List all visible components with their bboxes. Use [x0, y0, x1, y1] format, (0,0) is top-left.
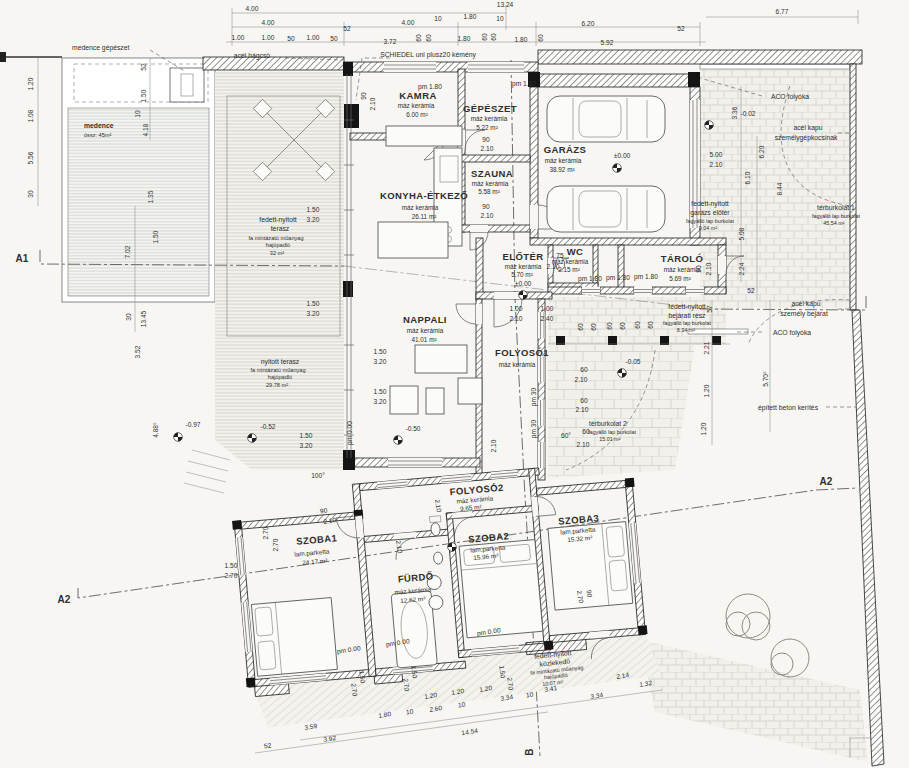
dim: 1.00 [232, 34, 245, 41]
dim: 3.72 [384, 38, 397, 45]
dim: 60 [606, 322, 613, 330]
dim: 2.10 [481, 145, 494, 152]
garage-forecourt-area: 9.04 m² [699, 225, 717, 231]
dim: 30 [27, 190, 34, 198]
dim: 2.24 [738, 262, 745, 275]
dim: 3.36 [731, 106, 738, 119]
garage-forecourt-label: fedett-nyitott [691, 200, 729, 208]
annotation: épített beton kerítés [758, 404, 819, 412]
dim: 60 [590, 323, 597, 331]
floor-plan-page: KAMRA máz kerámia 6.00 m² GÉPÉSZET máz k… [0, 0, 909, 768]
dim: 2.10 [369, 97, 376, 110]
dim: pm 1.80 [578, 275, 602, 283]
dim: 1.20 [700, 422, 707, 435]
dim: 10 [134, 110, 141, 118]
dim: 1.50 [307, 206, 320, 213]
dim: 60 [577, 323, 584, 331]
dim: 1.00 [541, 305, 554, 312]
room-area: 26.11 m² [412, 213, 437, 220]
dim: 4.88⁵ [152, 422, 159, 438]
dim: 3.20 [374, 358, 387, 365]
dim: 1.50 [374, 348, 387, 355]
terrace2-finish: fa mintázatú műanyag [250, 367, 305, 373]
room-finish: máz kerámia [499, 361, 536, 368]
dim: 52 [343, 25, 351, 32]
dim: 2.10 [575, 376, 588, 383]
fence-top-right [538, 50, 862, 64]
dim: 10 [406, 708, 415, 716]
room-area: 5.58 m² [478, 188, 500, 195]
level: ±0.00 [614, 152, 631, 159]
dining-table [378, 222, 448, 258]
terburkolat1-area: 45.54 m² [823, 220, 844, 226]
dim: pm 1.80 [418, 83, 442, 91]
level: -0.05 [625, 358, 640, 365]
dim: 3.20 [307, 310, 320, 317]
dim: pm 30 [530, 420, 538, 439]
dim: 1.35 [147, 190, 154, 203]
room-name: ELŐTÉR [503, 251, 544, 262]
dim: 3.20 [374, 398, 387, 405]
dim: pm 1.80 [634, 273, 658, 281]
dim: 10 [496, 15, 504, 22]
dim: 2.70 [225, 572, 238, 579]
terrace1-finish: hajópadló [266, 242, 290, 248]
dim: 60 [425, 34, 432, 42]
dim: pm 30 [530, 388, 538, 407]
dim: 8.44 [776, 182, 783, 195]
dim: 1.20 [703, 384, 710, 397]
chimney [344, 104, 359, 128]
room-name: WC [567, 246, 584, 257]
terrace2-area: 29.78 m² [266, 382, 288, 388]
section-marker-a1: A1 [16, 253, 29, 264]
entry-porch-area: 8.34 m² [677, 327, 695, 333]
dim: 60 [634, 321, 641, 329]
dim: 3.20 [307, 216, 320, 223]
dim: 2.70 [272, 538, 279, 551]
fence-right [850, 64, 856, 310]
dim: 2.10 [576, 406, 589, 413]
dim: 90 [695, 265, 702, 273]
terrace-deck [215, 72, 344, 470]
dim: 90 [585, 590, 593, 599]
pool-equipment-box [170, 68, 204, 102]
level: -0.50 [405, 425, 420, 432]
annotation: medence gépészet [72, 44, 130, 52]
dim: 57 [706, 305, 713, 313]
pool-label: medence [84, 122, 114, 129]
dim: 60 [481, 33, 488, 41]
dim: 2.10 [547, 263, 560, 270]
room-name: NAPPALI [403, 314, 447, 325]
dim: 5.08 [738, 227, 745, 240]
room-area: 6.00 m² [406, 111, 428, 118]
entry-porch-label: bejárati rész [668, 312, 706, 320]
dim: 1.00 [262, 34, 275, 41]
dim: 13.45 [140, 310, 147, 327]
terburkolat1-label: térburkolat 1 [817, 204, 855, 211]
terrace1-label: terasz [271, 225, 290, 232]
room-finish: máz kerámia [472, 180, 509, 187]
dim: 50 [330, 35, 338, 42]
room-area: 5.70 m² [511, 271, 533, 278]
dim: 90 [360, 92, 367, 100]
dim: 7.02 [124, 245, 131, 258]
dim: 10 [434, 15, 442, 22]
dim: 1.00 [307, 34, 320, 41]
annotation: acél kapu [791, 300, 820, 308]
dim: 1.50 [225, 562, 238, 569]
dim: 60 [582, 428, 590, 435]
dim: 4.18 [142, 123, 149, 136]
dim: 1.80 [515, 36, 528, 43]
floor-plan-drawing: KAMRA máz kerámia 6.00 m² GÉPÉSZET máz k… [0, 0, 909, 768]
room-name: KAMRA [399, 90, 436, 101]
level: -0.02 [740, 110, 755, 117]
dim: 100° [311, 472, 325, 479]
room-finish: máz kerámia [545, 157, 582, 164]
dim: 60 [647, 321, 654, 329]
room-area: 5.69 m² [669, 275, 691, 282]
dim: 60° [561, 432, 571, 439]
entry-porch-finish: fagyálló lap burkolat [663, 320, 711, 326]
room-name: SZAUNA [471, 168, 513, 179]
dim: pm 1.80 [512, 80, 536, 88]
car [547, 186, 665, 232]
terrace2-finish: hajópadló [268, 374, 292, 380]
dim: 2.10 [481, 212, 494, 219]
room-name: GARÁZS [544, 144, 587, 155]
dim: 52 [677, 25, 685, 32]
dim: 5.70⁵ [762, 371, 769, 387]
room-finish: máz kerámia [402, 204, 439, 211]
section-marker-a2: A2 [58, 594, 71, 605]
dim: 6.10 [744, 171, 751, 184]
annotation: személygépkocsinak [775, 134, 838, 142]
room-name: TÁROLÓ [661, 253, 704, 264]
terrace1-label: fedett-nyitott [259, 216, 297, 224]
entry-porch-label: fedett-nyitott [668, 303, 706, 311]
terburkolat2-finish: fagyálló lap burkolat [588, 429, 636, 435]
room-name: KONYHA-ÉTKEZŐ [380, 190, 468, 201]
dim: 5.00 [710, 151, 723, 158]
room-finish: máz kerámia [505, 263, 542, 270]
room-name: GÉPÉSZET [463, 103, 517, 114]
dim: 52 [747, 287, 755, 294]
annotation: ACO folyóka [771, 93, 809, 101]
dim: 90 [320, 507, 329, 515]
dim: 6.20 [582, 20, 595, 27]
dim: 1.50 [152, 230, 159, 243]
dim: 2.10 [577, 441, 590, 448]
dim: 60 [415, 34, 422, 42]
dim: 1.00 [510, 305, 523, 312]
pool-area: össz: 45m² [84, 132, 111, 138]
dim: 5.92 [601, 39, 614, 46]
dim: 2.40 [541, 315, 554, 322]
level: -0.52 [260, 423, 275, 430]
dim: 4.00 [246, 5, 259, 12]
room-area: 38.92 m² [549, 166, 574, 173]
dim: 1.50 [300, 432, 313, 439]
dim: 1.80 [458, 35, 471, 42]
dim: pm 1.80 [606, 274, 630, 282]
fence-top-left [203, 57, 344, 70]
garage-forecourt-label: garázs előtér [690, 209, 730, 217]
terrace1-area: 32 m² [270, 250, 284, 256]
section-marker-b: B [524, 748, 535, 755]
annotation: személy bejárat [780, 310, 828, 318]
annotation: ACO folyóka [773, 329, 811, 337]
dim: 10 [458, 701, 467, 709]
room-area: 41.01 m² [411, 336, 436, 343]
annotation: SCHIEDEL uni plusz20 kémény [380, 51, 476, 59]
room-area: 2.15 m² [558, 266, 580, 273]
dim: 2.10 [490, 439, 497, 452]
room-finish: máz kerámia [471, 115, 508, 122]
dim: 50 [287, 35, 295, 42]
dim: 2.10 [510, 315, 523, 322]
dim: 10 [526, 691, 535, 699]
terrace1-finish: fa mintázatú műanyag [248, 235, 303, 241]
level: ±0.00 [515, 280, 532, 287]
garage-forecourt-finish: fagyálló lap burkolat [686, 218, 734, 224]
dim: 52 [264, 742, 273, 750]
level: -0.97 [185, 421, 200, 428]
dim: 1.80 [464, 13, 477, 20]
dim: 60 [619, 322, 626, 330]
dim: 90 [482, 136, 490, 143]
dim: 4.00 [402, 19, 415, 26]
room-name: FOLYOSÓ1 [495, 347, 549, 358]
terrace2-label: nyitott terasz [261, 358, 300, 366]
dim: 60 [537, 34, 544, 42]
dim: 4.00 [262, 19, 275, 26]
dim: pm 0.00 [346, 421, 354, 445]
dim: 6.77 [776, 8, 789, 15]
dim: 2.70 [262, 526, 269, 539]
dim: 1.50 [374, 388, 387, 395]
room-finish: máz kerámia [407, 327, 444, 334]
dim: 6.20 [758, 145, 765, 158]
dim: 2.10 [705, 262, 712, 275]
dim: 2.21 [703, 341, 710, 354]
annotation: acél hágcsó [234, 52, 270, 60]
dim: 13.24 [497, 1, 514, 8]
dim: 60 [490, 33, 497, 41]
dim: 60 [580, 397, 588, 404]
terburkolat1-finish: fagyálló lap burkolat [812, 213, 860, 219]
dim: 75 [556, 252, 564, 259]
terburkolat2-area: 15.01 m² [599, 436, 620, 442]
dim: 30 [125, 313, 132, 321]
dim: 3.20 [300, 442, 313, 449]
annotation: acél kapu [793, 124, 822, 132]
aco-drain-top [700, 64, 850, 69]
dim: 1.20 [27, 77, 34, 90]
section-marker-a2: A2 [820, 476, 833, 487]
car [547, 96, 665, 142]
dim: 1.08 [27, 109, 34, 122]
room-area: 5.22 m² [476, 124, 498, 131]
dim: 1.50 [307, 300, 320, 307]
aco-drain-right [688, 329, 748, 334]
dim: 5.56 [27, 151, 34, 164]
dim: 1.50 [140, 89, 147, 102]
dim: 60 [580, 366, 588, 373]
dim: 90 [482, 203, 490, 210]
room-finish: máz kerámia [398, 102, 435, 109]
dim: 3.52 [134, 345, 141, 358]
sofa [415, 345, 467, 373]
dim: 2.10 [710, 161, 723, 168]
paving-terburkolat2 [548, 345, 695, 478]
dim: 52 [140, 63, 147, 71]
terburkolat2-label: térburkolat 2 [589, 420, 627, 427]
